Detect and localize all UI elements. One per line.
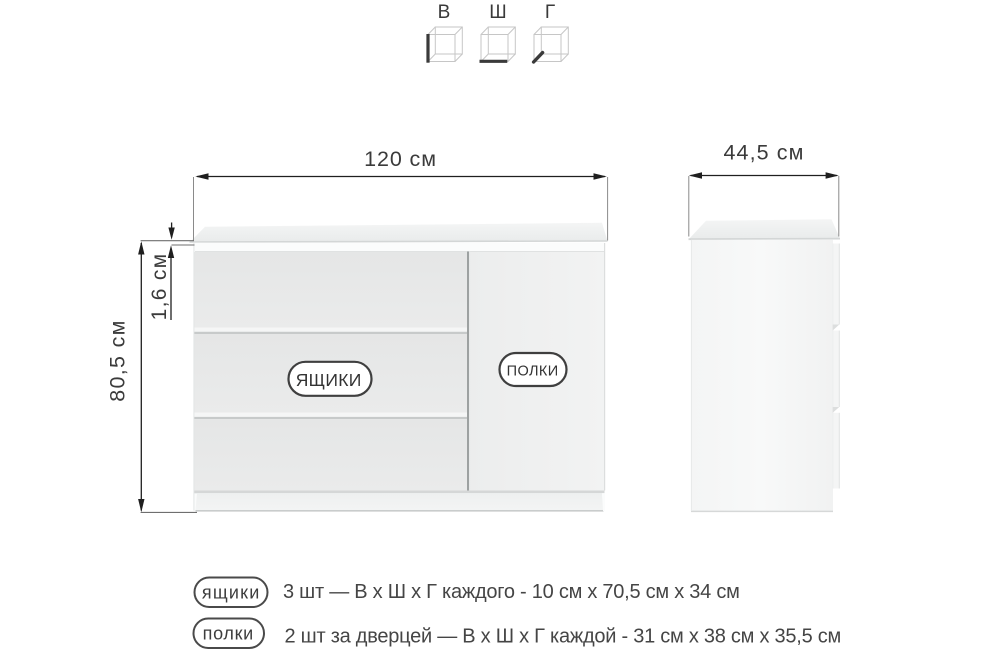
svg-text:В: В [438, 2, 451, 23]
svg-text:1,6 см: 1,6 см [148, 253, 171, 321]
svg-text:3 шт — В х Ш х Г каждого - 10: 3 шт — В х Ш х Г каждого - 10 см х 70,5 … [283, 581, 740, 603]
svg-text:Ш: Ш [489, 2, 506, 23]
svg-text:2 шт за дверцей — В х Ш х Г ка: 2 шт за дверцей — В х Ш х Г каждой - 31 … [285, 626, 842, 648]
svg-text:120 см: 120 см [364, 147, 437, 171]
svg-text:Г: Г [545, 2, 555, 23]
svg-text:полки: полки [203, 623, 254, 643]
svg-text:ЯЩИКИ: ЯЩИКИ [296, 370, 362, 390]
svg-text:44,5 см: 44,5 см [723, 141, 804, 165]
svg-text:80,5 см: 80,5 см [106, 319, 130, 401]
svg-text:ящики: ящики [202, 582, 261, 602]
svg-text:ПОЛКИ: ПОЛКИ [507, 364, 559, 380]
